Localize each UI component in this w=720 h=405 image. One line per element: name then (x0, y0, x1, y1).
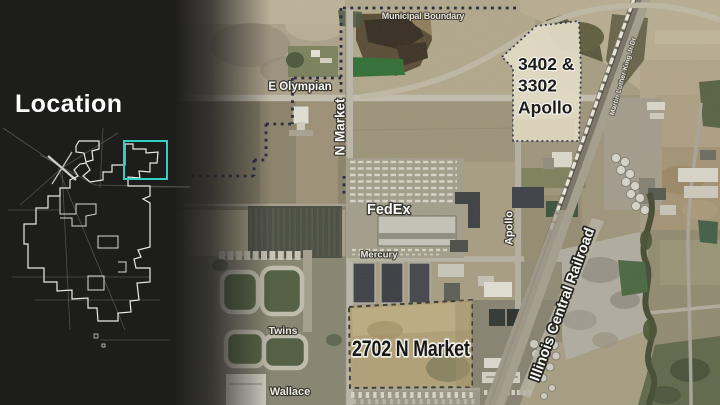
svg-text:Location: Location (15, 90, 122, 118)
